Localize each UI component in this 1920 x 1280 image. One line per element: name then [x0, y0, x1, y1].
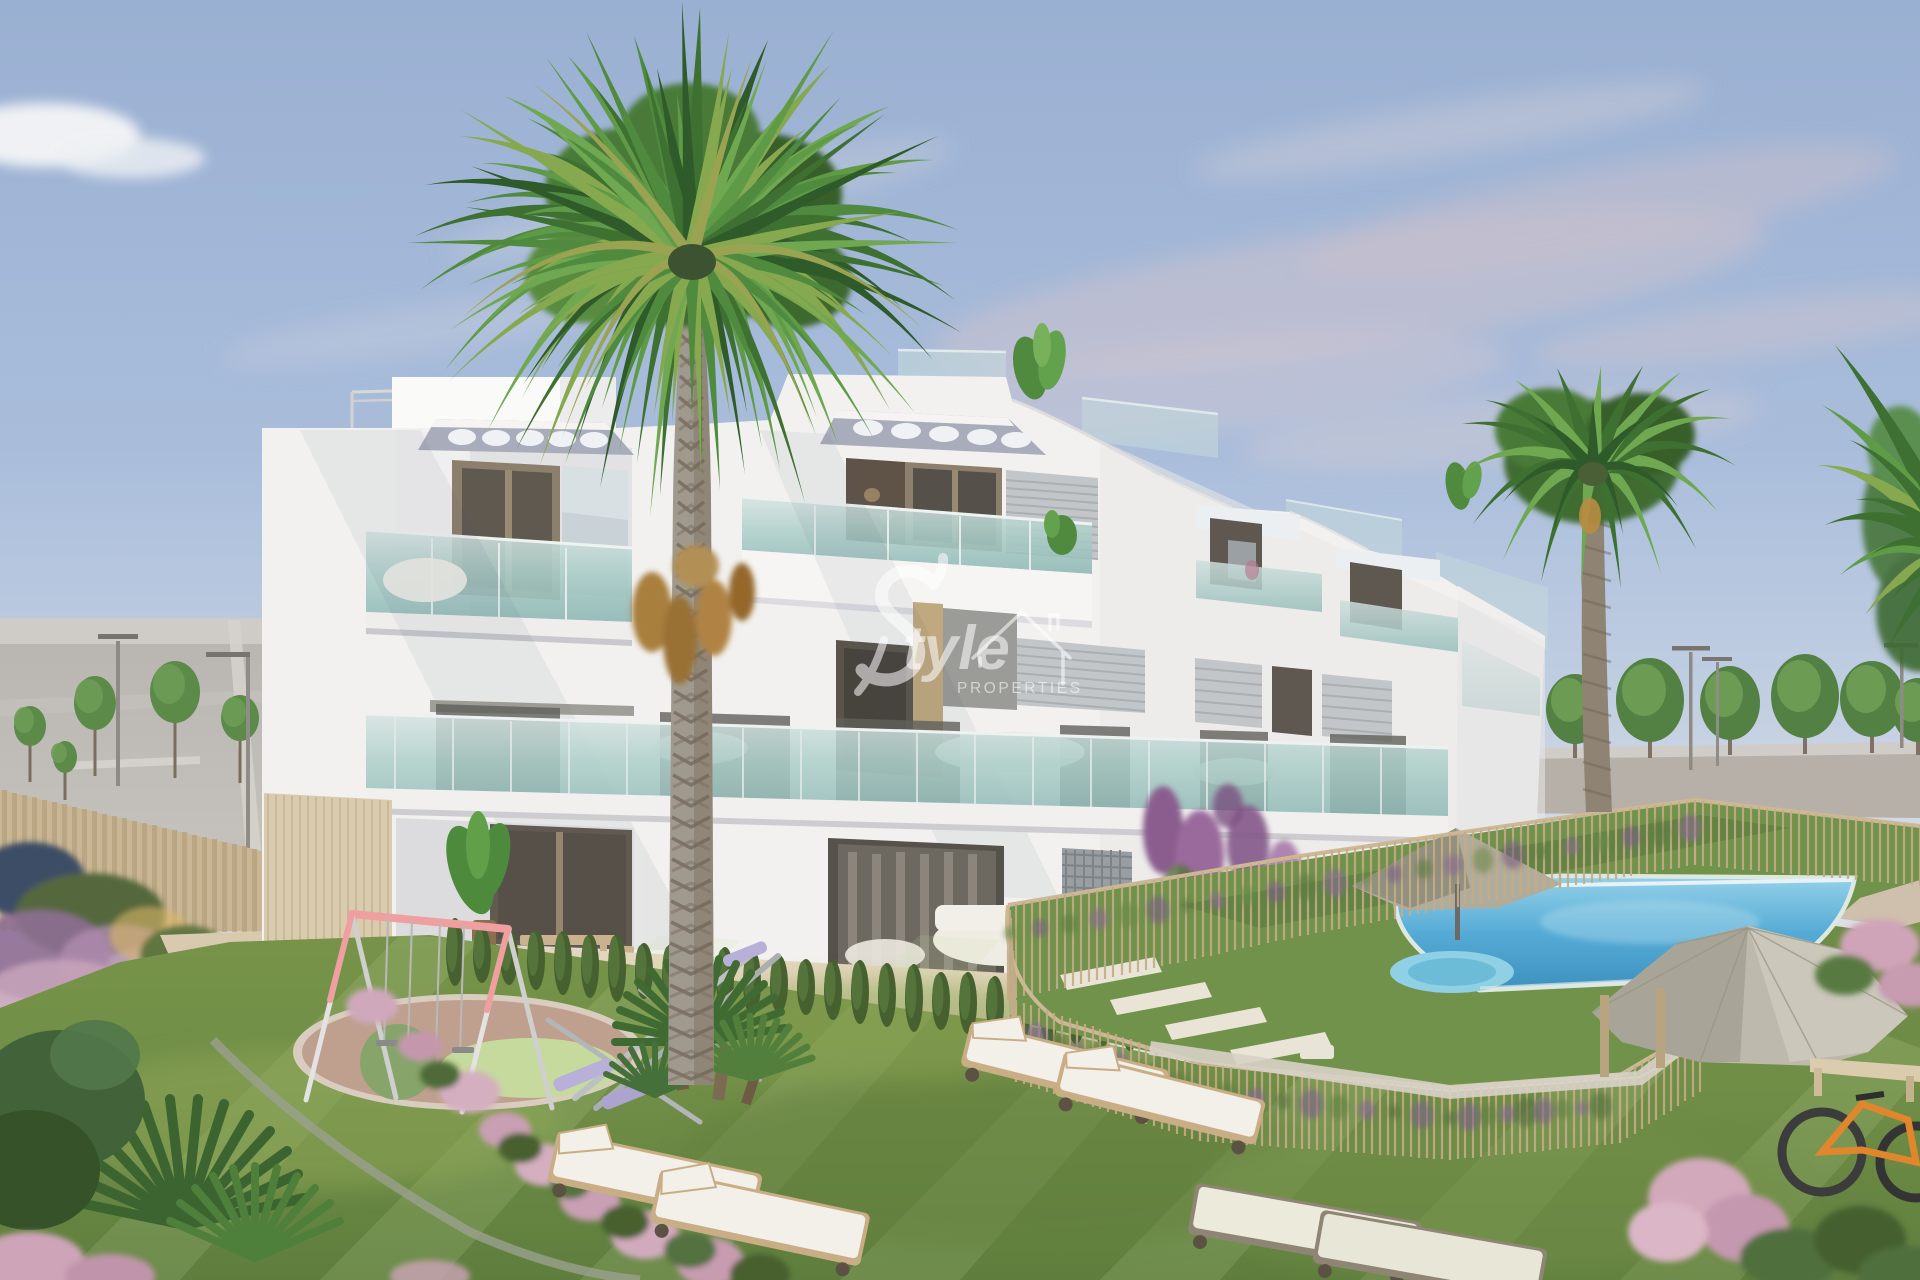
svg-text:tyle: tyle [903, 614, 1010, 683]
